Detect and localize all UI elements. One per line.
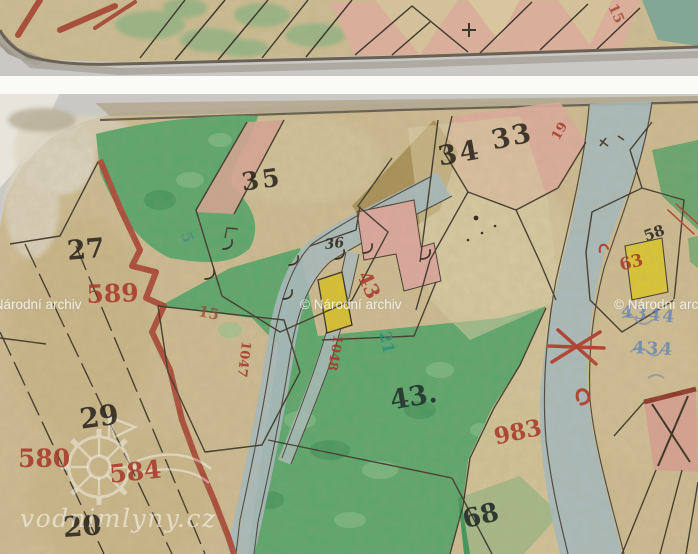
map-artwork [0,0,698,554]
site-watermark: vodnimlyny.cz [20,506,217,531]
parcel-number-580-red: 580 [18,446,70,471]
map-scan-viewport: 27 35 34 33 29 20 43. 68 58 36 589 580 5… [0,0,698,554]
blue-pencil-434: 434 [632,340,674,359]
main-map-sheet [0,95,698,554]
page-gap [0,76,698,94]
archive-watermark-left: © Národní archiv [0,298,82,312]
parcel-number-584-red: 584 [108,457,163,487]
parcel-number-35: 35 [240,164,284,194]
archive-watermark-right: © Národní archiv [614,298,698,312]
parcel-number-27: 27 [66,235,106,265]
parcel-number-29: 29 [78,401,120,434]
teal-number-21: 21 [376,330,396,355]
parcel-number-589-red: 589 [86,280,139,307]
parcel-number-43-black: 43. [388,380,439,415]
parcel-number-36: 36 [324,236,345,252]
archive-watermark-center: © Národní archiv [300,298,402,312]
parcel-number-34: 34 [436,136,484,170]
parcel-number-15-green-area: 15 [197,304,221,323]
parcel-number-33: 33 [489,119,535,154]
